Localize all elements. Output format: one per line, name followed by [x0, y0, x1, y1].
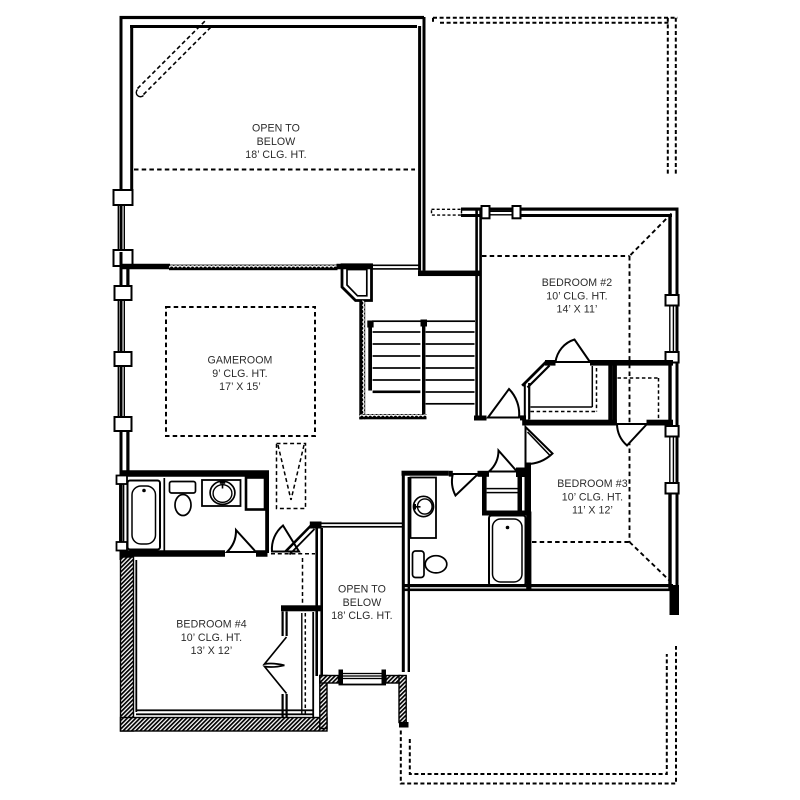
- svg-text:10’ CLG. HT.: 10’ CLG. HT.: [546, 290, 607, 302]
- svg-text:18’ CLG. HT.: 18’ CLG. HT.: [331, 610, 392, 622]
- svg-text:BELOW: BELOW: [343, 597, 382, 609]
- svg-text:BELOW: BELOW: [257, 136, 296, 148]
- svg-text:10’ CLG. HT.: 10’ CLG. HT.: [562, 491, 623, 503]
- svg-text:18’ CLG. HT.: 18’ CLG. HT.: [245, 149, 306, 161]
- svg-text:OPEN TO: OPEN TO: [338, 584, 386, 596]
- svg-text:BEDROOM #4: BEDROOM #4: [176, 619, 246, 631]
- svg-text:BEDROOM #2: BEDROOM #2: [542, 277, 612, 289]
- svg-text:OPEN TO: OPEN TO: [252, 123, 300, 135]
- svg-text:11’ X 12’: 11’ X 12’: [572, 505, 613, 517]
- svg-text:9’ CLG. HT.: 9’ CLG. HT.: [212, 368, 267, 380]
- svg-text:10’ CLG. HT.: 10’ CLG. HT.: [181, 632, 242, 644]
- svg-text:GAMEROOM: GAMEROOM: [208, 355, 273, 367]
- svg-text:14’ X 11’: 14’ X 11’: [557, 304, 598, 316]
- svg-text:13’ X 12’: 13’ X 12’: [191, 645, 233, 657]
- svg-text:BEDROOM #3: BEDROOM #3: [557, 478, 627, 490]
- svg-text:17’ X 15’: 17’ X 15’: [219, 381, 261, 393]
